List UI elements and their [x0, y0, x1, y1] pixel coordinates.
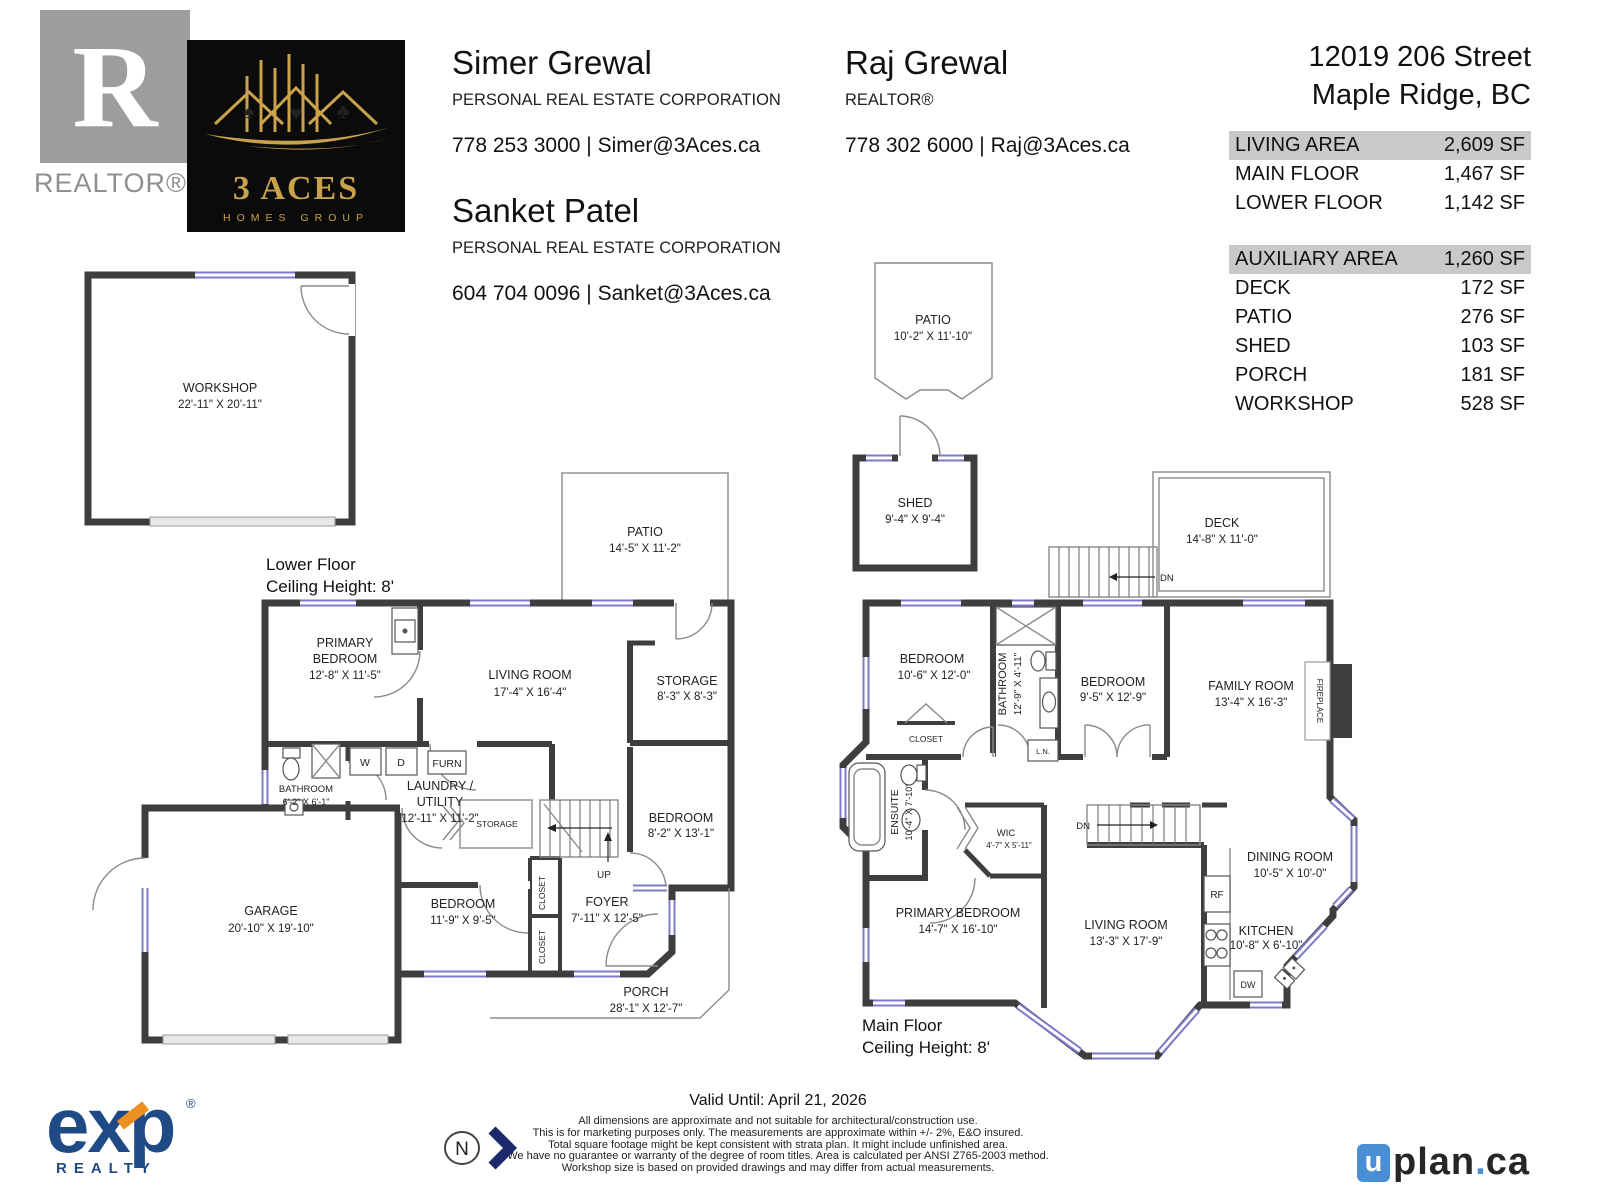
- agent-card-simer: Simer Grewal PERSONAL REAL ESTATE CORPOR…: [452, 44, 852, 158]
- brokerage-subtitle: HOMES GROUP: [223, 212, 369, 224]
- up-label: UP: [597, 870, 611, 881]
- fridge-label: RF: [1210, 890, 1223, 901]
- room-dims-living-lower: 17'-4" X 16'-4": [494, 687, 567, 699]
- exp-wordmark: exp: [46, 1086, 174, 1164]
- room-label-dining: DINING ROOM: [1247, 850, 1333, 864]
- area-value: 1,260 SF: [1426, 245, 1531, 274]
- furnace-label: FURN: [432, 758, 461, 770]
- room-label-bedroom-mid: BEDROOM: [431, 897, 496, 911]
- closet-label-2: CLOSET: [537, 930, 547, 964]
- brokerage-logo: ♠ ♥ ♣ 3 ACES HOMES GROUP: [187, 40, 405, 232]
- area-label: AUXILIARY AREA: [1229, 245, 1426, 274]
- area-label: PATIO: [1229, 303, 1426, 332]
- room-dims-dining: 10'-5" X 10'-0": [1254, 868, 1327, 880]
- area-label: DECK: [1229, 274, 1426, 303]
- area-label: MAIN FLOOR: [1229, 160, 1420, 189]
- address-line2: Maple Ridge, BC: [1128, 76, 1531, 114]
- room-label-ensuite: ENSUITE: [889, 789, 901, 835]
- agent-card-sanket: Sanket Patel PERSONAL REAL ESTATE CORPOR…: [452, 192, 852, 306]
- table-row: PORCH 181 SF: [1229, 361, 1531, 390]
- area-value: 2,609 SF: [1420, 131, 1531, 160]
- room-label-primary-lower-1: PRIMARY: [317, 636, 374, 650]
- room-dims-workshop: 22'-11" X 20'-11": [178, 399, 262, 411]
- table-row: PATIO 276 SF: [1229, 303, 1531, 332]
- room-label-deck: DECK: [1205, 516, 1240, 530]
- area-label: SHED: [1229, 332, 1426, 361]
- property-address: 12019 206 Street Maple Ridge, BC: [1128, 38, 1531, 114]
- area-label: LOWER FLOOR: [1229, 189, 1420, 218]
- disclaimer-block: All dimensions are approximate and not s…: [448, 1116, 1108, 1175]
- room-label-living-lower: LIVING ROOM: [488, 668, 571, 682]
- room-dims-bedroom1: 10'-6" X 12'-0": [898, 670, 971, 682]
- room-dims-storage-lower: 8'-3" X 8'-3": [657, 691, 717, 703]
- disclaimer-line: Workshop size is based on provided drawi…: [448, 1163, 1108, 1175]
- area-value: 1,142 SF: [1420, 189, 1531, 218]
- lower-ceiling-caption: Ceiling Height: 8': [266, 577, 394, 596]
- area-value: 172 SF: [1426, 274, 1531, 303]
- room-dims-shed: 9'-4" X 9'-4": [885, 514, 945, 526]
- room-dims-kitchen: 10'-8" X 6'-10": [1230, 940, 1303, 952]
- lower-floor-caption: Lower Floor: [266, 555, 356, 574]
- north-label: N: [455, 1139, 469, 1160]
- area-label: WORKSHOP: [1229, 390, 1426, 419]
- workshop-plan: WORKSHOP 22'-11" X 20'-11": [88, 275, 355, 526]
- room-dims-deck: 14'-8" X 11'-0": [1186, 534, 1258, 546]
- table-row: MAIN FLOOR 1,467 SF: [1229, 160, 1531, 189]
- room-label-family: FAMILY ROOM: [1208, 679, 1294, 693]
- room-dims-living-main: 13'-3" X 17'-9": [1090, 936, 1163, 948]
- area-value: 103 SF: [1426, 332, 1531, 361]
- area-value: 276 SF: [1426, 303, 1531, 332]
- room-dims-garage: 20'-10" X 19'-10": [228, 923, 313, 935]
- fireplace-label: FIREPLACE: [1315, 679, 1324, 723]
- north-indicator: N: [438, 1122, 528, 1178]
- room-label-bedroom2: BEDROOM: [1081, 675, 1146, 689]
- valid-until-text: Valid Until: April 21, 2026: [478, 1092, 1078, 1110]
- svg-text:♥: ♥: [290, 103, 302, 125]
- room-label-laundry-2: UTILITY: [417, 795, 464, 809]
- uplan-ca-text: ca: [1486, 1141, 1530, 1184]
- room-label-shed: SHED: [898, 496, 933, 510]
- area-label: LIVING AREA: [1229, 131, 1420, 160]
- table-row: LOWER FLOOR 1,142 SF: [1229, 189, 1531, 218]
- area-label: PORCH: [1229, 361, 1426, 390]
- room-dims-patio-lower: 14'-5" X 11'-2": [609, 543, 681, 555]
- dishwasher-label: DW: [1241, 980, 1256, 990]
- disclaimer-line: This is for marketing purposes only. The…: [448, 1128, 1108, 1140]
- room-dims-ensuite: 10'-4" X 7'-10": [904, 784, 914, 841]
- room-label-porch: PORCH: [623, 985, 668, 999]
- north-chevron-icon: [492, 1130, 510, 1166]
- uplan-plan-text: plan: [1393, 1141, 1475, 1184]
- agent-contact: 778 253 3000 | Simer@3Aces.ca: [452, 134, 852, 158]
- table-row: LIVING AREA 2,609 SF: [1229, 131, 1531, 160]
- room-label-laundry-1: LAUNDRY /: [407, 779, 474, 793]
- room-dims-bedroom-right: 8'-2" X 13'-1": [648, 828, 714, 840]
- deck-dn-label: DN: [1160, 573, 1174, 584]
- storage-small-label: STORAGE: [476, 819, 518, 829]
- lower-floor-plan: PATIO 14'-5" X 11'-2" PRIMARY BEDROOM 12…: [93, 473, 731, 1044]
- room-label-bathroom-main: BATHROOM: [997, 653, 1009, 716]
- room-dims-primary-main: 14'-7" X 16'-10": [918, 924, 997, 936]
- room-label-garage: GARAGE: [244, 904, 298, 918]
- room-dims-porch: 28'-1" X 12'-7": [610, 1003, 683, 1015]
- closet-label-1: CLOSET: [537, 876, 547, 910]
- living-area-table: LIVING AREA 2,609 SF MAIN FLOOR 1,467 SF…: [1229, 131, 1531, 218]
- stairs-dn-label: DN: [1076, 821, 1090, 832]
- room-label-patio-lower: PATIO: [627, 525, 663, 539]
- svg-text:♠: ♠: [244, 101, 255, 123]
- table-row: WORKSHOP 528 SF: [1229, 390, 1531, 419]
- address-line1: 12019 206 Street: [1128, 38, 1531, 76]
- room-label-primary-main: PRIMARY BEDROOM: [896, 906, 1021, 920]
- room-dims-bedroom-mid: 11'-9" X 9'-5": [430, 915, 495, 927]
- area-value: 181 SF: [1426, 361, 1531, 390]
- room-dims-laundry: 12'-11" X 11'-2": [401, 813, 478, 825]
- area-value: 528 SF: [1426, 390, 1531, 419]
- linen-label: L.N.: [1036, 747, 1050, 756]
- washer-label: W: [360, 757, 370, 769]
- agent-contact: 604 704 0096 | Sanket@3Aces.ca: [452, 282, 852, 306]
- agent-title: PERSONAL REAL ESTATE CORPORATION: [452, 91, 852, 110]
- room-dims-family: 13'-4" X 16'-3": [1215, 697, 1288, 709]
- table-row: AUXILIARY AREA 1,260 SF: [1229, 245, 1531, 274]
- room-label-living-main: LIVING ROOM: [1084, 918, 1167, 932]
- floorplan-sheet: WORKSHOP 22'-11" X 20'-11": [0, 0, 1600, 1200]
- agent-contact: 778 302 6000 | Raj@3Aces.ca: [845, 134, 1245, 158]
- main-floor-caption: Main Floor: [862, 1016, 943, 1035]
- agent-name: Simer Grewal: [452, 44, 852, 82]
- agent-name: Sanket Patel: [452, 192, 852, 230]
- agent-title: PERSONAL REAL ESTATE CORPORATION: [452, 239, 852, 258]
- room-dims-patio-main: 10'-2" X 11'-10": [894, 331, 972, 343]
- brokerage-name: 3 ACES: [233, 172, 359, 206]
- area-value: 1,467 SF: [1420, 160, 1531, 189]
- exp-realty-label: REALTY: [56, 1160, 157, 1177]
- realtor-r-mark: R: [72, 28, 157, 146]
- uplan-dot: .: [1475, 1141, 1486, 1184]
- table-row: SHED 103 SF: [1229, 332, 1531, 361]
- room-label-workshop: WORKSHOP: [183, 381, 257, 395]
- svg-text:♣: ♣: [336, 101, 349, 123]
- room-label-bedroom1: BEDROOM: [900, 652, 965, 666]
- exp-registered-mark: ®: [186, 1096, 196, 1111]
- room-dims-primary-lower: 12'-8" X 11'-5": [309, 670, 381, 682]
- uplan-u-icon: u: [1357, 1144, 1390, 1182]
- room-dims-bathroom-main: 12'-9" X 4'-11": [1013, 652, 1024, 715]
- room-label-bathroom-lower: BATHROOM: [279, 784, 333, 795]
- room-dims-bathroom-lower: 6'-2" X 6'-1": [283, 797, 330, 807]
- room-label-kitchen: KITCHEN: [1239, 924, 1294, 938]
- dryer-label: D: [397, 757, 405, 769]
- room-label-bedroom-right: BEDROOM: [649, 811, 714, 825]
- main-ceiling-caption: Ceiling Height: 8': [862, 1038, 990, 1057]
- room-dims-bedroom2: 9'-5" X 12'-9": [1080, 692, 1146, 704]
- room-label-wic: WIC: [997, 828, 1016, 839]
- room-label-patio-main: PATIO: [915, 313, 951, 327]
- realtor-logo: R: [40, 10, 190, 163]
- uplan-logo: u plan . ca: [1357, 1141, 1530, 1184]
- brokerage-logo-art: ♠ ♥ ♣: [187, 46, 405, 154]
- room-dims-wic: 4'-7" X 5'-11": [986, 841, 1032, 850]
- auxiliary-area-table: AUXILIARY AREA 1,260 SF DECK 172 SF PATI…: [1229, 245, 1531, 419]
- closet-label-main: CLOSET: [909, 734, 943, 744]
- realtor-logo-label: REALTOR®: [34, 168, 187, 199]
- table-row: DECK 172 SF: [1229, 274, 1531, 303]
- room-label-primary-lower-2: BEDROOM: [313, 652, 378, 666]
- room-label-storage-lower: STORAGE: [657, 674, 718, 688]
- room-dims-foyer: 7'-11" X 12'-5": [571, 913, 643, 925]
- room-label-foyer: FOYER: [585, 895, 628, 909]
